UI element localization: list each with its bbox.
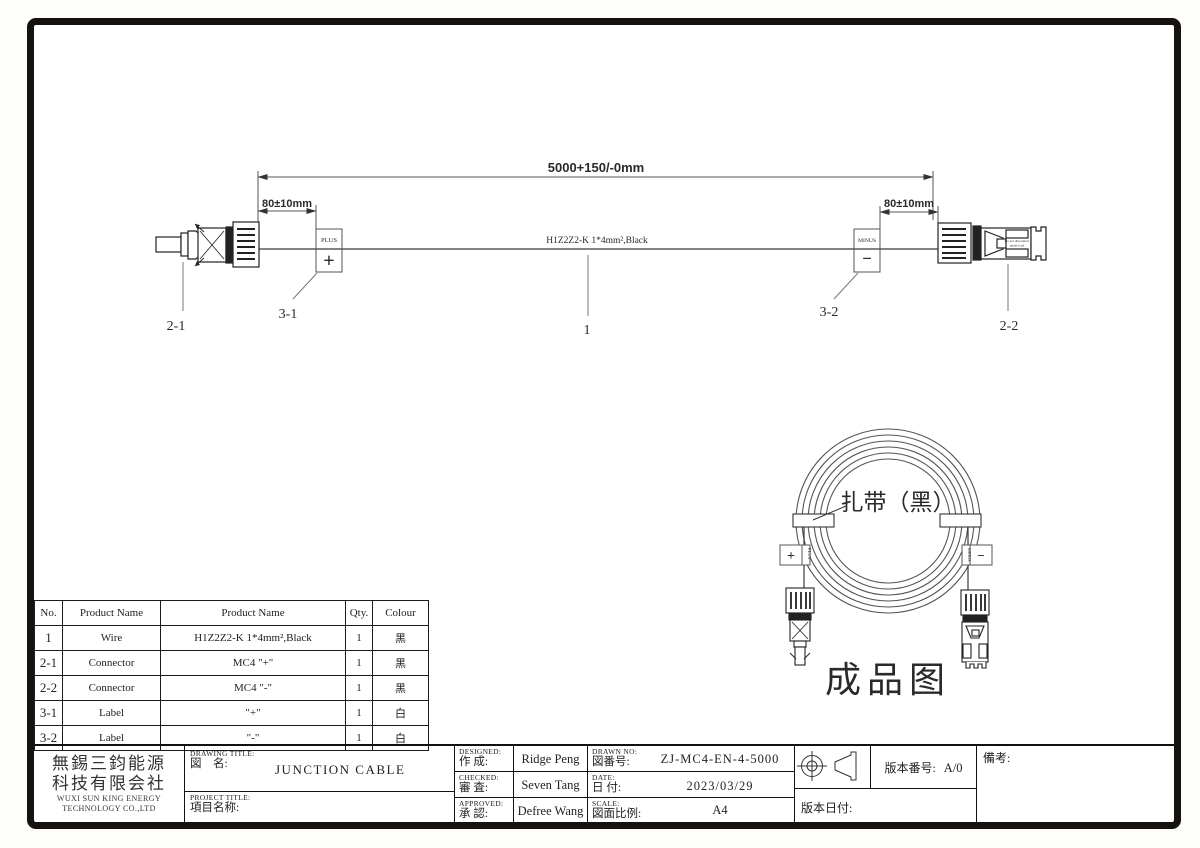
finished-male-connector	[786, 588, 814, 665]
company-name-en-line1: WUXI SUN KING ENERGY	[34, 794, 184, 804]
title-block: 無錫三鈞能源 科技有限会社 WUXI SUN KING ENERGY TECHN…	[34, 744, 1174, 824]
bom-no: 3-1	[35, 701, 63, 726]
date-value: 2023/03/29	[650, 779, 790, 794]
finished-minus-text: MINUS	[967, 548, 972, 562]
finished-plus-tag: + PLUS	[780, 545, 812, 565]
callout-3-2: 3-2	[820, 305, 839, 320]
bom-header-colour: Colour	[373, 601, 429, 626]
scale-label-cn: 図面比例:	[592, 808, 641, 821]
checked-label-cn: 審 査:	[459, 782, 513, 795]
third-angle-projection-icon	[795, 746, 867, 786]
company-name-en-line2: TECHNOLOGY CO.,LTD	[34, 804, 184, 814]
company-block: 無錫三鈞能源 科技有限会社 WUXI SUN KING ENERGY TECHN…	[34, 746, 185, 824]
plus-label-tag: PLUS +	[316, 229, 342, 272]
bom-colour: 白	[373, 701, 429, 726]
project-title-cell: PROJECT TITLE: 項目名称:	[185, 792, 455, 824]
table-row: 3-1 Label "+" 1 白	[35, 701, 429, 726]
drawing-title-value: JUNCTION CABLE	[275, 762, 405, 778]
checked-label-en: CHECKED:	[459, 774, 513, 782]
tie-label: 扎带（黑）	[841, 490, 956, 515]
plus-label-symbol: +	[323, 250, 334, 272]
finished-plus-symbol: +	[787, 549, 795, 564]
dimension-right-label: 80±10mm	[884, 198, 934, 210]
drawing-title-cell: DRAWING TITLE: 図 名: JUNCTION CABLE	[185, 746, 455, 792]
bom-qty: 1	[346, 626, 373, 651]
bom-qty: 1	[346, 651, 373, 676]
drawing-title-label-cn: 図 名:	[190, 758, 255, 771]
scale-label-en: SCALE:	[592, 800, 641, 808]
bom-name: Connector	[63, 651, 161, 676]
bom-qty: 1	[346, 701, 373, 726]
table-row: 2-1 Connector MC4 "+" 1 黑	[35, 651, 429, 676]
bom-name: Wire	[63, 626, 161, 651]
minus-label-symbol: −	[862, 249, 872, 268]
checked-value-cell: Seven Tang	[513, 772, 588, 798]
company-name-cn-line2: 科技有限会社	[34, 774, 184, 794]
bom-colour: 黑	[373, 626, 429, 651]
checked-label-cell: CHECKED: 審 査:	[455, 772, 513, 798]
date-label-en: DATE:	[592, 774, 621, 782]
bom-qty: 1	[346, 676, 373, 701]
callout-2-1: 2-1	[167, 319, 186, 334]
drawn-no-label-en: DRAWN NO:	[592, 748, 637, 756]
bom-no: 2-2	[35, 676, 63, 701]
mc4-male-connector	[156, 222, 259, 267]
bom-name: Label	[63, 701, 161, 726]
scale-value: A4	[650, 803, 790, 818]
bom-spec: "+"	[161, 701, 346, 726]
drawn-no-value: ZJ-MC4-EN-4-5000	[650, 752, 790, 767]
drawing-title-label-en: DRAWING TITLE:	[190, 750, 255, 758]
bom-header-qty: Qty.	[346, 601, 373, 626]
bom-spec: MC4 "+"	[161, 651, 346, 676]
table-row: 1 Wire H1Z2Z2-K 1*4mm²,Black 1 黑	[35, 626, 429, 651]
remark-label: 備考:	[983, 751, 1010, 765]
callout-2-2: 2-2	[1000, 319, 1019, 334]
designed-label-cell: DESIGNED: 作 成:	[455, 746, 513, 772]
date-label-cn: 日 付:	[592, 782, 621, 795]
finished-minus-tag: − MINUS	[962, 545, 992, 565]
callout-1: 1	[584, 323, 591, 338]
bom-spec: H1Z2Z2-K 1*4mm²,Black	[161, 626, 346, 651]
approved-label-cn: 承 認:	[459, 808, 513, 821]
table-row: 2-2 Connector MC4 "-" 1 黑	[35, 676, 429, 701]
finished-minus-symbol: −	[977, 548, 984, 563]
drawing-sheet: 5000+150/-0mm 80±10mm 80±10mm H1Z2Z2-K 1…	[0, 0, 1200, 848]
remark-cell: 備考:	[977, 746, 1174, 824]
projection-symbol-cell	[795, 746, 871, 789]
drawn-no-cell: DRAWN NO: 図番号: ZJ-MC4-EN-4-5000	[588, 746, 795, 772]
bom-header-spec: Product Name	[161, 601, 346, 626]
callout-leader-lines	[183, 255, 1008, 316]
finished-view-caption: 成品图	[825, 660, 951, 700]
designed-value-cell: Ridge Peng	[513, 746, 588, 772]
version-date-cell: 版本日付:	[795, 789, 977, 824]
finished-plus-text: PLUS	[807, 548, 812, 560]
date-cell: DATE: 日 付: 2023/03/29	[588, 772, 795, 798]
project-title-label-en: PROJECT TITLE:	[190, 794, 250, 802]
finished-female-connector	[961, 590, 989, 668]
connector-marking-line1: Do not disconnect	[1005, 239, 1030, 243]
version-value: A/0	[944, 761, 963, 775]
bom-name: Connector	[63, 676, 161, 701]
bom-no: 1	[35, 626, 63, 651]
connector-marking-line2: under load	[1010, 244, 1025, 248]
approved-value: Defree Wang	[518, 804, 584, 818]
coil-end-wires	[804, 527, 968, 590]
bom-table: No. Product Name Product Name Qty. Colou…	[34, 600, 429, 751]
approved-value-cell: Defree Wang	[513, 798, 588, 824]
project-title-label-cn: 項目名称:	[190, 802, 250, 815]
designed-label-cn: 作 成:	[459, 756, 513, 769]
dimension-total-length	[258, 171, 933, 224]
designed-label-en: DESIGNED:	[459, 748, 513, 756]
callout-3-1: 3-1	[279, 307, 298, 322]
bom-colour: 黑	[373, 651, 429, 676]
bom-spec: MC4 "-"	[161, 676, 346, 701]
cable-tie-bands	[793, 514, 981, 527]
bom-header-name: Product Name	[63, 601, 161, 626]
version-cell: 版本番号: A/0	[871, 746, 977, 789]
bom-no: 2-1	[35, 651, 63, 676]
bom-colour: 黑	[373, 676, 429, 701]
checked-value: Seven Tang	[521, 778, 579, 792]
version-date-label: 版本日付:	[801, 801, 852, 815]
bom-header-no: No.	[35, 601, 63, 626]
scale-cell: SCALE: 図面比例: A4	[588, 798, 795, 824]
company-name-cn-line1: 無錫三鈞能源	[34, 754, 184, 774]
dimension-left-label: 80±10mm	[262, 198, 312, 210]
plus-label-text: PLUS	[321, 237, 337, 244]
designed-value: Ridge Peng	[522, 752, 580, 766]
mc4-female-connector: Do not disconnect under load	[938, 223, 1046, 263]
wire-spec-text: H1Z2Z2-K 1*4mm²,Black	[546, 236, 648, 246]
approved-label-en: APPROVED:	[459, 800, 513, 808]
version-label: 版本番号:	[884, 761, 935, 775]
minus-label-text: MINUS	[858, 238, 876, 244]
minus-label-tag: MINUS −	[854, 229, 880, 272]
bom-header-row: No. Product Name Product Name Qty. Colou…	[35, 601, 429, 626]
approved-label-cell: APPROVED: 承 認:	[455, 798, 513, 824]
drawn-no-label-cn: 図番号:	[592, 756, 637, 769]
dimension-total-label: 5000+150/-0mm	[548, 160, 645, 175]
